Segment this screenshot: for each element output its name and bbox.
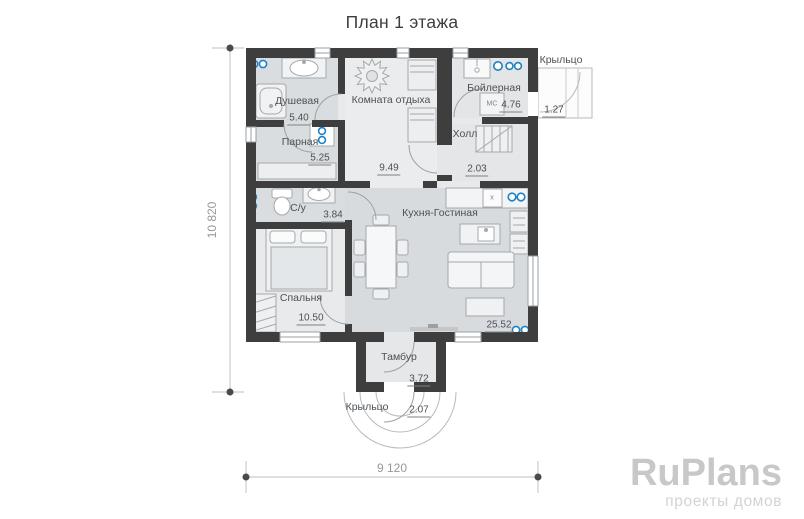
- bed-icon: [266, 227, 332, 291]
- room-label-shower: Душевая: [275, 95, 319, 107]
- room-area-hall: 2.03: [465, 164, 488, 177]
- room-area-porch-bottom: 2.07: [407, 405, 430, 418]
- room-area-porch-right: 1.27: [542, 105, 565, 118]
- toilet-icon: [272, 189, 292, 215]
- bench-icon: [408, 60, 436, 90]
- room-area-rest-room: 9.49: [377, 163, 400, 176]
- room-area-bedroom: 10.50: [296, 313, 325, 326]
- dimension-vertical-label: 10 820: [205, 202, 219, 239]
- dimension-horizontal-label: 9 120: [377, 461, 407, 475]
- watermark: RuPlans проекты домов: [630, 454, 782, 511]
- oven-icon: [510, 234, 528, 254]
- sofa-icon: [448, 252, 514, 288]
- watermark-tagline: проекты домов: [630, 493, 782, 511]
- room-area-kitchen-living: 25.52: [484, 320, 513, 333]
- room-label-vestibule: Тамбур: [381, 351, 417, 363]
- kitchen-unit-label: х: [490, 195, 494, 202]
- room-label-rest-room: Комната отдыха: [352, 94, 431, 106]
- room-label-bedroom: Спальня: [280, 292, 322, 304]
- room-label-hall: Холл: [453, 128, 478, 140]
- stairs-icon: [476, 126, 512, 152]
- bench-icon: [408, 108, 436, 142]
- boiler-sink-icon: [464, 59, 490, 78]
- room-area-shower: 5.40: [287, 113, 310, 126]
- room-label-porch-right: Крыльцо: [540, 54, 583, 66]
- fridge-icon: [510, 211, 528, 232]
- room-label-boiler: Бойлерная: [467, 82, 521, 94]
- room-area-vestibule: 3.72: [407, 374, 430, 387]
- wc-sink-icon: [303, 186, 335, 203]
- sink-icon: [282, 58, 326, 78]
- boiler-unit-label: МС: [487, 101, 498, 108]
- floor-plan-drawing: [0, 0, 804, 519]
- coffee-table-icon: [466, 298, 504, 316]
- watermark-brand: RuPlans: [630, 454, 782, 492]
- room-area-sauna: 5.25: [308, 153, 331, 166]
- room-label-sauna: Парная: [282, 136, 319, 148]
- room-label-wc: С/у: [290, 202, 306, 214]
- room-label-kitchen-living: Кухня-Гостиная: [402, 207, 478, 219]
- room-area-boiler: 4.76: [499, 100, 522, 113]
- room-label-porch-bottom: Крыльцо: [346, 401, 389, 413]
- kitchen-island-icon: [460, 224, 500, 244]
- room-area-wc: 3.84: [321, 210, 344, 223]
